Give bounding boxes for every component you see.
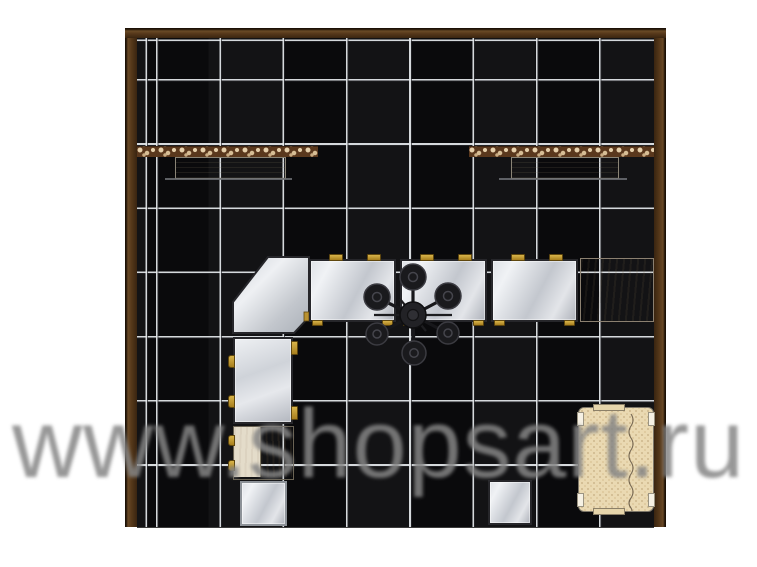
ornamental-frieze-left [137, 146, 318, 157]
showcase-small-center [488, 480, 532, 525]
brass-handle [228, 355, 235, 368]
brass-handle [228, 435, 235, 446]
showcase-3 [491, 259, 578, 322]
sofa [578, 407, 654, 512]
tiled-floor [137, 38, 654, 528]
brass-handle [228, 395, 235, 408]
brass-hinge [291, 406, 298, 420]
brass-hinge [549, 254, 563, 261]
showcase-small-left [240, 481, 287, 526]
brass-hinge [291, 341, 298, 355]
corner-showcase [232, 256, 310, 334]
brass-foot [564, 320, 575, 326]
chandelier [352, 253, 477, 378]
shelf-shadow-right [499, 178, 627, 180]
brass-hinge [511, 254, 525, 261]
wall-shelf-right [511, 157, 619, 179]
wall-top [125, 28, 666, 38]
wall-left [125, 38, 137, 527]
brass-hinge [329, 254, 343, 261]
sofa-back-seam [579, 408, 653, 511]
wood-counter [580, 258, 654, 322]
wood-cabinet [233, 426, 294, 480]
brass-handle [228, 460, 235, 471]
wall-shelf-left [175, 157, 286, 179]
brass-foot [494, 320, 505, 326]
brass-foot [312, 320, 323, 326]
cabinet-panel-left [234, 427, 260, 477]
plan-area [125, 28, 666, 527]
wall-right [654, 38, 666, 527]
showcase-vertical [233, 337, 293, 424]
shop-floor-plan-render: www.shopsart.ru [0, 0, 757, 567]
shelf-shadow-left [165, 178, 292, 180]
ornamental-frieze-right [469, 146, 654, 157]
cabinet-panel-right [260, 427, 292, 477]
